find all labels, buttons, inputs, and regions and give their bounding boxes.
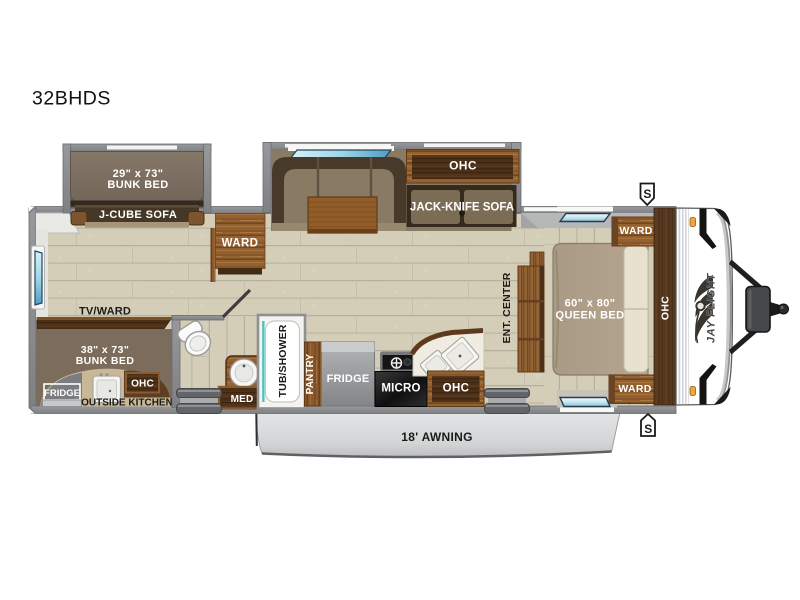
svg-text:OHC: OHC (131, 379, 154, 390)
svg-text:PANTRY: PANTRY (305, 353, 316, 394)
svg-text:TV/WARD: TV/WARD (79, 306, 131, 318)
svg-text:FRIDGE: FRIDGE (44, 388, 80, 399)
svg-text:BUNK BED: BUNK BED (76, 355, 135, 367)
svg-text:32BHDS: 32BHDS (32, 88, 111, 110)
svg-text:ENT. CENTER: ENT. CENTER (501, 272, 513, 343)
svg-text:OHC: OHC (449, 159, 477, 173)
svg-text:WARD: WARD (619, 225, 652, 237)
svg-text:MICRO: MICRO (381, 383, 420, 395)
svg-text:OUTSIDE KITCHEN: OUTSIDE KITCHEN (81, 398, 173, 409)
svg-text:QUEEN BED: QUEEN BED (556, 310, 625, 322)
svg-text:J-CUBE SOFA: J-CUBE SOFA (99, 209, 177, 221)
svg-text:S: S (643, 187, 651, 201)
svg-text:FRIDGE: FRIDGE (327, 373, 370, 385)
svg-text:60" x 80": 60" x 80" (565, 298, 616, 310)
svg-text:JAY FLIGHT: JAY FLIGHT (706, 272, 718, 343)
svg-text:18' AWNING: 18' AWNING (401, 430, 472, 444)
svg-text:OHC: OHC (660, 296, 672, 320)
svg-text:JACK-KNIFE SOFA: JACK-KNIFE SOFA (410, 202, 514, 214)
svg-text:BUNK BED: BUNK BED (107, 179, 168, 191)
svg-text:OHC: OHC (443, 383, 470, 395)
svg-text:TUB/SHOWER: TUB/SHOWER (277, 324, 289, 397)
svg-text:MED: MED (231, 394, 254, 405)
svg-text:S: S (644, 422, 652, 436)
svg-text:WARD: WARD (222, 238, 259, 250)
svg-text:WARD: WARD (618, 383, 651, 395)
